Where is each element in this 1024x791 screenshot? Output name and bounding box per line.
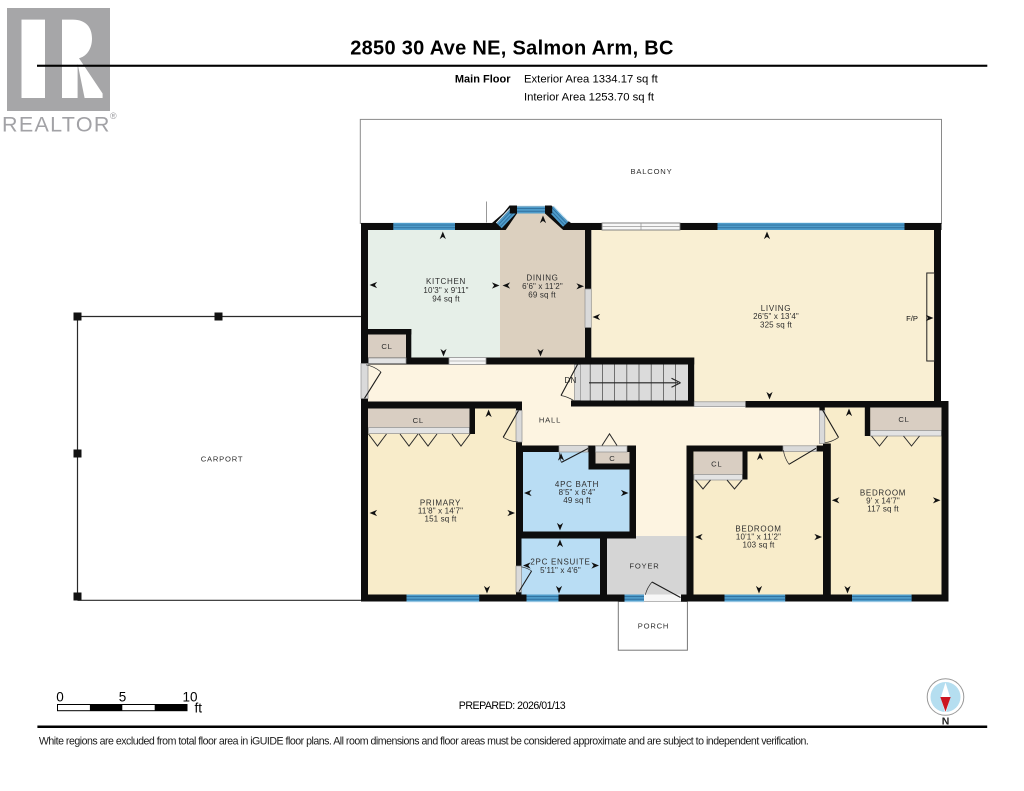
- svg-text:CL: CL: [413, 416, 424, 425]
- svg-text:PORCH: PORCH: [638, 622, 669, 631]
- svg-text:BALCONY: BALCONY: [631, 167, 673, 176]
- svg-text:69 sq ft: 69 sq ft: [528, 291, 556, 300]
- svg-text:PREPARED: 2026/01/13: PREPARED: 2026/01/13: [459, 700, 566, 712]
- svg-text:HALL: HALL: [539, 416, 561, 425]
- svg-text:CL: CL: [898, 415, 909, 424]
- svg-text:Interior Area 1253.70 sq ft: Interior Area 1253.70 sq ft: [524, 92, 655, 104]
- svg-text:Exterior Area 1334.17 sq ft: Exterior Area 1334.17 sq ft: [524, 74, 659, 86]
- svg-text:Main Floor: Main Floor: [455, 74, 511, 86]
- svg-text:C: C: [609, 454, 615, 463]
- svg-text:94 sq ft: 94 sq ft: [432, 295, 460, 304]
- svg-text:FOYER: FOYER: [629, 562, 659, 571]
- svg-text:F/P: F/P: [906, 314, 918, 323]
- svg-text:5'11" x 4'6": 5'11" x 4'6": [540, 566, 581, 575]
- svg-text:103 sq ft: 103 sq ft: [742, 541, 775, 550]
- svg-text:CL: CL: [381, 342, 392, 351]
- svg-text:REALTOR: REALTOR: [2, 113, 111, 137]
- svg-text:49 sq ft: 49 sq ft: [563, 496, 591, 505]
- svg-text:0: 0: [56, 690, 64, 705]
- svg-text:5: 5: [119, 690, 127, 705]
- svg-text:®: ®: [110, 111, 117, 121]
- svg-text:325 sq ft: 325 sq ft: [760, 321, 793, 330]
- svg-text:2850 30 Ave NE, Salmon Arm, BC: 2850 30 Ave NE, Salmon Arm, BC: [350, 37, 674, 59]
- svg-text:KITCHEN: KITCHEN: [426, 277, 466, 286]
- svg-text:CARPORT: CARPORT: [201, 455, 244, 464]
- svg-text:117 sq ft: 117 sq ft: [867, 505, 899, 514]
- svg-text:ft: ft: [195, 701, 203, 716]
- svg-text:151 sq ft: 151 sq ft: [424, 515, 457, 524]
- svg-text:White regions are excluded fro: White regions are excluded from total fl…: [39, 736, 808, 748]
- svg-text:CL: CL: [711, 459, 722, 468]
